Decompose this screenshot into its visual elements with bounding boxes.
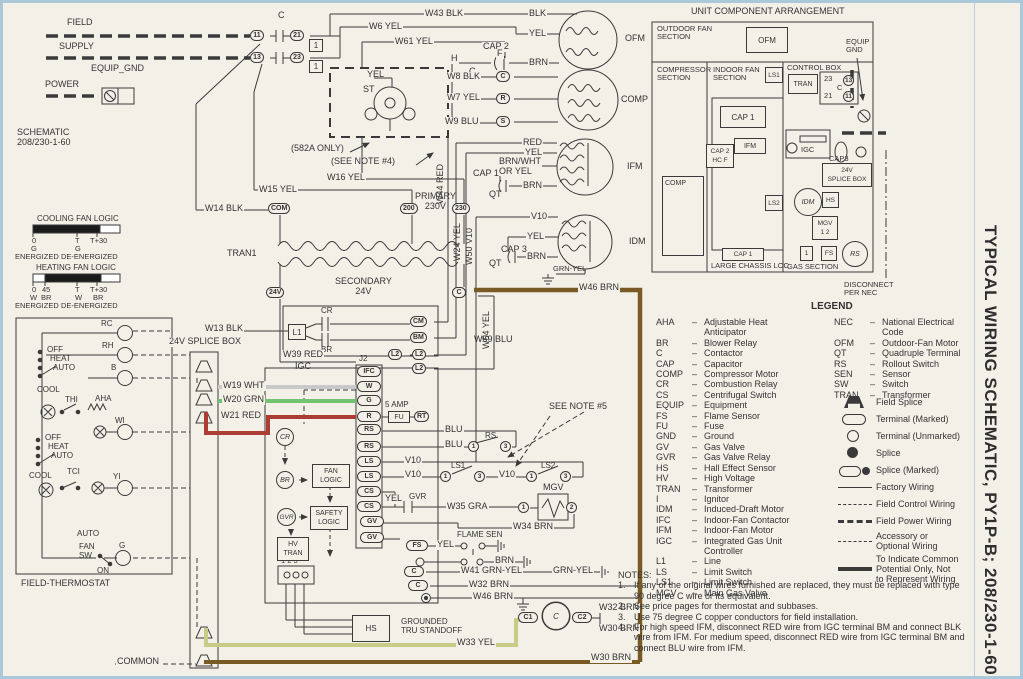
note5-arrow-1 (508, 412, 584, 457)
terminal-cs-1: CS (357, 486, 381, 497)
wire-w32-label: W32 BRN (468, 580, 510, 590)
wire-w61-label: W61 YEL (394, 37, 434, 47)
note-item: 2.See price pages for thermostat and sub… (618, 601, 970, 611)
common-label: COMMON (116, 657, 160, 667)
terminal-com: COM (268, 203, 290, 214)
uca-rs-circle: RS (842, 241, 868, 267)
wire-w15-label: W15 YEL (258, 185, 298, 195)
gvr-relay: GVR (277, 508, 296, 526)
wire-w46b-label: W46 BRN (472, 592, 514, 602)
fuse-box: FU (388, 411, 410, 423)
legend-symbol-icon (836, 429, 876, 443)
wire-w7-label: W7 YEL (446, 93, 481, 103)
uca-tran-box: TRAN (788, 74, 818, 94)
power-label: POWER (44, 80, 80, 90)
terminal-r: R (357, 411, 381, 422)
uca-compressor-label: COMPRESSOR SECTION (656, 66, 712, 82)
wire-w35-label: W35 GRA (446, 502, 489, 512)
terminal-cm: CM (410, 316, 427, 327)
legend-symbol-row: Field Control Wiring (836, 497, 976, 511)
legend-entry: NECNational Electrical Code (834, 317, 974, 338)
terminal-c-a: C (404, 566, 424, 577)
terminal-fs: FS (406, 540, 428, 551)
qt1-label: QT (488, 190, 503, 200)
cool-energized: ENERGIZED (14, 253, 60, 261)
yi-label: YI (112, 473, 122, 482)
uca-disconnect-label: DISCONNECT PER NEC (843, 281, 895, 297)
legend-symbol-row: Accessory or Optional Wiring (836, 531, 976, 551)
idm-label: IDM (628, 237, 647, 247)
uca-cap1-bottom-box: CAP 1 (722, 248, 764, 261)
wi-label: WI (114, 417, 126, 426)
wire-w44-label: W44 RED (436, 163, 446, 205)
cr-contact-label: CR (320, 307, 334, 316)
aha-label: AHA (94, 395, 112, 404)
blu-label-1: BLU (444, 425, 464, 435)
b-label: B (110, 364, 117, 373)
legend-right-column: NECNational Electrical CodeOFMOutdoor-Fa… (834, 317, 974, 400)
equip-gnd-symbol-box2 (118, 88, 134, 104)
v10-label-1: V10 (404, 456, 422, 466)
ifm-label: IFM (626, 162, 644, 172)
uca-title: UNIT COMPONENT ARRANGEMENT (690, 7, 846, 17)
l1-box: L1 (288, 324, 306, 340)
ofm-brn-label: BRN (528, 58, 549, 68)
terminal-200: 200 (400, 203, 418, 214)
uca-hs-box: HS (822, 192, 839, 208)
legend-symbol-icon (836, 412, 876, 426)
legend-entry: CRCombustion Relay (656, 379, 828, 389)
uca-ls1-box: LS1 (765, 67, 783, 83)
uca-ofm-box: OFM (746, 27, 788, 53)
fuse-block-1: 1 (309, 39, 323, 52)
cool-t30: T+30 (89, 237, 108, 245)
terminal-comp-s: S (496, 116, 510, 127)
mgv-zigzag (542, 499, 564, 517)
legend-symbol-row: Field Power Wiring (836, 514, 976, 528)
legend-symbol-icon (836, 446, 876, 460)
uca-ls2-box: LS2 (765, 195, 783, 211)
tci-label: TCI (66, 468, 81, 477)
legend-entry: GVRGas Valve Relay (656, 452, 828, 462)
legend-entry: GNDGround (656, 431, 828, 441)
legend-symbol-icon (836, 534, 876, 548)
wire-w13-label: W13 BLK (204, 324, 244, 334)
note-item: 4.For high speed IFM, disconnect RED wir… (618, 622, 970, 653)
notes-title: NOTES: (618, 570, 970, 580)
heat-deenergized: DE-ENERGIZED (60, 302, 119, 310)
terminal-bm: BM (410, 332, 427, 343)
wire-w50-label: W50 V10 (465, 227, 475, 266)
terminal-comp-r: R (496, 93, 510, 104)
contactor-c-circle: C (542, 602, 570, 630)
note4-arrow (416, 153, 433, 165)
terminal-24v: 24V (266, 287, 284, 298)
mgv-label: MGV (542, 483, 565, 493)
igc-label: IGC (294, 362, 312, 372)
terminal-13: 13 (250, 52, 264, 63)
legend-entry: SENSensor (834, 369, 974, 379)
legend-entry: FSFlame Sensor (656, 411, 828, 421)
wire-w39-label: W39 RED (282, 350, 324, 360)
uca-fs-box: FS (821, 246, 837, 261)
br-relay: BR (276, 471, 294, 489)
legend-symbol-icon (836, 514, 876, 528)
wire-w16-label: W16 YEL (326, 173, 366, 183)
wire-w33-label: W33 YEL (456, 638, 496, 648)
note5-label: SEE NOTE #5 (548, 402, 608, 412)
wire-w14-label: W14 BLK (204, 204, 244, 214)
fuse-5amp-label: 5 AMP (384, 401, 410, 410)
ifm-brn-label: BRN (522, 181, 543, 191)
fan-sw-label: FAN SW (78, 543, 96, 560)
v10-label-3: V10 (498, 470, 516, 480)
uca-c-label: C (836, 84, 843, 92)
v10-label-2: V10 (404, 470, 422, 480)
blk-label: BLK (528, 9, 547, 19)
uca-control-label: CONTROL BOX (786, 64, 842, 72)
cooling-fan-logic-title: COOLING FAN LOGIC (36, 215, 120, 224)
terminal-l2-c: L2 (412, 363, 426, 374)
legend-symbol-icon (836, 395, 876, 409)
uca-23-label: 23 (823, 75, 833, 83)
terminal-c1: C1 (518, 612, 538, 623)
qt2-label: QT (488, 259, 503, 269)
cap2-h-label: H (450, 54, 459, 64)
terminal-c-b: C (408, 580, 428, 591)
terminal-g: G (357, 395, 381, 406)
j2-label: J2 (358, 355, 368, 364)
legend-entry: CSCentrifugal Switch (656, 390, 828, 400)
equip-gnd-label: EQUIP_GND (90, 64, 145, 74)
uca-idm-circle: IDM (794, 188, 822, 216)
page-title-vertical: TYPICAL WIRING SCHEMATIC, PY1P-B; 208/23… (980, 120, 1000, 679)
tran1-label: TRAN1 (226, 249, 258, 259)
legend-entry: CAPCapacitor (656, 359, 828, 369)
wire-w9-label: W9 BLU (444, 117, 480, 127)
secondary-label: SECONDARY 24V (334, 277, 393, 296)
legend-entry: L1Line (656, 556, 828, 566)
field-splices (196, 361, 212, 666)
ls2-terminal-3: 3 (560, 471, 571, 482)
ls2-terminal-1: 1 (526, 471, 537, 482)
schematic-label: SCHEMATIC 208/230-1-60 (16, 128, 72, 147)
terminal-rt: RT (414, 411, 429, 422)
notes-section: NOTES: 1.If any of the original wires fu… (618, 570, 970, 653)
legend-entry: HSHall Effect Sensor (656, 463, 828, 473)
uca-outdoor-label: OUTDOOR FAN SECTION (656, 25, 713, 41)
field-label: FIELD (66, 18, 94, 28)
wire-w19-label: W19 WHT (222, 381, 266, 391)
ls1-terminal-1: 1 (440, 471, 451, 482)
wire-w6-label: W6 YEL (368, 22, 403, 32)
uca-1-box: 1 (800, 246, 813, 261)
cs-yel-label: YEL (384, 494, 403, 504)
tran1-windings (278, 242, 458, 267)
terminal-ifc: IFC (357, 366, 381, 377)
terminal-l2-a: L2 (388, 349, 402, 360)
uca-21-label: 21 (823, 92, 833, 100)
wire-w43-label: W43 BLK (424, 9, 464, 19)
wire-w20-label: W20 GRN (222, 395, 265, 405)
heat-energized: ENERGIZED (14, 302, 60, 310)
legend-symbol-row: Splice (836, 446, 976, 460)
ofm-label: OFM (624, 34, 646, 44)
idm-brn-label: BRN (526, 252, 547, 262)
terminal-rs-2: RS (357, 441, 381, 452)
legend-symbol-row: Terminal (Marked) (836, 412, 976, 426)
contactor-c-label: C (277, 11, 286, 21)
st-label: ST (362, 85, 376, 95)
comp-label: COMP (620, 95, 649, 105)
note-item: 3.Use 75 degree C copper conductors for … (618, 612, 970, 622)
ofm-yel-label: YEL (528, 29, 547, 39)
rc-label: RC (100, 320, 114, 329)
page-fold-line (974, 0, 975, 679)
wire-w24-label: W24 YEL (453, 222, 463, 262)
legend-left-column: AHAAdjustable Heat AnticipatorBRBlower R… (656, 317, 828, 598)
uca-splice-box: 24V SPLICE BOX (822, 163, 872, 187)
uca-comp-box: COMP (662, 176, 704, 256)
idm-yel-label: YEL (526, 232, 545, 242)
mgv-terminal-2: 2 (566, 502, 577, 513)
legend-entry: SWSwitch (834, 379, 974, 389)
uca-ifm-box: IFM (734, 138, 766, 154)
igc-123-box (278, 566, 314, 584)
wire-w34-label: W34 BRN (512, 522, 554, 532)
motor-coils (560, 28, 600, 263)
terminal-cs-2: CS (357, 501, 381, 512)
terminal-w: W (357, 381, 381, 392)
splice-box (190, 352, 218, 668)
idm-grnyel-label: GRN-YEL (552, 265, 587, 273)
fan-auto-label: AUTO (76, 530, 100, 539)
ls2-switch-label: LS2 (540, 462, 556, 471)
wire-w41-label: W41 GRN-YEL (460, 566, 523, 576)
legend-entry: IDMInduced-Draft Motor (656, 504, 828, 514)
unmarked-terminal (416, 558, 424, 566)
legend-entry: BRBlower Relay (656, 338, 828, 348)
legend-symbol-row: Factory Wiring (836, 480, 976, 494)
fan-logic-box: FAN LOGIC (312, 464, 350, 488)
uca-mgv-box: MGV 1 2 (812, 216, 838, 240)
legend-entry: IIgnitor (656, 494, 828, 504)
uca-equip-gnd-label: EQUIP GND (845, 38, 870, 54)
cap2-f-label: F (496, 49, 504, 59)
fuse-block-2: 1 (309, 60, 323, 73)
legend-entry: IGCIntegrated Gas Unit Controller (656, 536, 828, 557)
cap1-label: CAP 1 (472, 169, 500, 179)
wiring-schematic-page: FIELD SUPPLY POWER EQUIP_GND SCHEMATIC 2… (0, 0, 1023, 679)
wire-w30b-label: W30 BRN (590, 653, 632, 663)
rs-switch-label: RS (484, 432, 497, 441)
legend-entry: COMPCompressor Motor (656, 369, 828, 379)
splice-box-label: 24V SPLICE BOX (168, 337, 242, 347)
terminal-gv-2: GV (360, 532, 384, 543)
terminal-230: 230 (452, 203, 470, 214)
wire-w21-label: W21 RED (220, 411, 262, 421)
rh-label: RH (101, 342, 115, 351)
legend-entry: EQUIPEquipment (656, 400, 828, 410)
notes-list: 1.If any of the original wires furnished… (618, 580, 970, 653)
fs-yel-label: YEL (436, 540, 455, 550)
legend-entry: AHAAdjustable Heat Anticipator (656, 317, 828, 338)
note-item: 1.If any of the original wires furnished… (618, 580, 970, 601)
grnyel-label: GRN-YEL (552, 566, 594, 576)
ifm-brnwht-label: BRN/WHT OR YEL (498, 157, 542, 176)
legend-entry: RSRollout Switch (834, 359, 974, 369)
uca-cap2-box: CAP 2 HC F (706, 144, 734, 168)
legend-entry: IFMIndoor-Fan Motor (656, 525, 828, 535)
terminal-c2: C2 (572, 612, 592, 623)
st-symbol (374, 87, 406, 119)
legend-entry: TRANTransformer (656, 484, 828, 494)
legend-entry: IFCIndoor-Fan Contactor (656, 515, 828, 525)
auto1-label: AUTO (52, 364, 76, 373)
cool2-label: COOL (28, 472, 53, 481)
uca-terminal-11: 11 (843, 91, 854, 102)
auto2-label: AUTO (50, 452, 74, 461)
terminal-23: 23 (290, 52, 304, 63)
thi-label: THI (64, 396, 79, 405)
legend-entry: OFMOutdoor-Fan Motor (834, 338, 974, 348)
cooling-bar-fill (33, 225, 100, 233)
terminal-rs-1: RS (357, 424, 381, 435)
wire-w8-label: W8 BLK (446, 72, 481, 82)
legend-entry: QTQuadruple Terminal (834, 348, 974, 358)
terminal-ls-1: LS (357, 456, 381, 467)
mgv-terminal-1: 1 (518, 502, 529, 513)
legend-entry: HVHigh Voltage (656, 473, 828, 483)
legend-symbol-row: Field Splice (836, 395, 976, 409)
legend-symbol-icon (836, 480, 876, 494)
wire-w59-label: W59 BLU (473, 335, 514, 345)
rs-terminal-3: 3 (500, 441, 511, 452)
cr-relay: CR (276, 428, 294, 446)
uca-gas-label: GAS SECTION (786, 263, 839, 271)
supply-label: SUPPLY (58, 42, 95, 52)
rs-terminal-1: 1 (468, 441, 479, 452)
terminal-ls-2: LS (357, 471, 381, 482)
uca-igc-label: IGC (800, 146, 815, 154)
ofm-motor (559, 11, 617, 69)
legend-symbol-icon (836, 497, 876, 511)
terminal-comp-c: C (496, 71, 510, 82)
terminal-gv-1: GV (360, 516, 384, 527)
splice-arrow-582a (350, 143, 369, 152)
thermostat-title: FIELD-THERMOSTAT (20, 579, 111, 589)
uca-indoor-label: INDOOR FAN SECTION (712, 66, 761, 82)
ls1-terminal-3: 3 (474, 471, 485, 482)
note4-label: (SEE NOTE #4) (330, 157, 396, 167)
uca-cap3-label: CAP3 (828, 155, 850, 163)
cool1-label: COOL (36, 386, 61, 395)
terminal-21: 21 (290, 30, 304, 41)
heating-fan-logic-title: HEATING FAN LOGIC (35, 264, 117, 273)
note5-arrow-2 (516, 416, 550, 466)
uca-cap1-box: CAP 1 (720, 106, 766, 128)
uca-igc-slot (800, 136, 826, 142)
ls1-switch-label: LS1 (450, 462, 466, 471)
blu-label-2: BLU (444, 440, 464, 450)
cool-deenergized: DE-ENERGIZED (60, 253, 119, 261)
idm-v10-label: V10 (530, 212, 548, 222)
a582-label: (582A ONLY) (290, 144, 345, 154)
flame-sen-label: FLAME SEN (456, 531, 503, 540)
cap3-label: CAP 3 (500, 245, 528, 255)
heating-bar-fill (45, 274, 101, 282)
legend-title: LEGEND (810, 302, 854, 312)
legend-entry: GVGas Valve (656, 442, 828, 452)
uca-chassis-label: LARGE CHASSIS LOC (710, 262, 790, 270)
legend-entry: CContactor (656, 348, 828, 358)
terminal-11: 11 (250, 30, 264, 41)
legend-entry: FUFuse (656, 421, 828, 431)
on-label: ON (96, 567, 110, 576)
terminal-l2-b: L2 (412, 349, 426, 360)
st-yel-label: YEL (366, 70, 385, 80)
legend-symbol-icon (836, 463, 876, 477)
hv-tran-box: HV TRAN (277, 537, 309, 561)
terminal-sec-c: C (452, 287, 466, 298)
legend-symbol-row: Terminal (Unmarked) (836, 429, 976, 443)
legend-symbol-row: Splice (Marked) (836, 463, 976, 477)
hs-box: HS (352, 615, 390, 642)
g-label: G (118, 542, 126, 551)
grounded-standoff-label: GROUNDED TRU STANDOFF (400, 618, 463, 635)
wire-w46-label: W46 BRN (578, 283, 620, 293)
legend-symbols: Field SpliceTerminal (Marked)Terminal (U… (836, 392, 976, 587)
safety-logic-box: SAFETY LOGIC (310, 506, 348, 530)
gvr-contact-label: GVR (408, 493, 427, 502)
